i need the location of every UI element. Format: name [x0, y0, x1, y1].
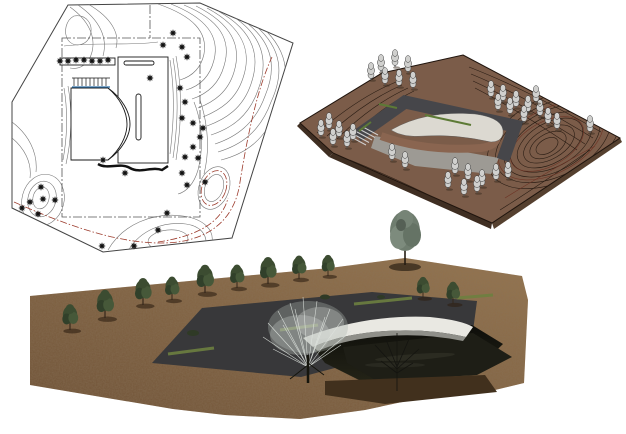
image-collage [0, 0, 626, 434]
rendering [25, 205, 565, 433]
rendering-figure [25, 205, 565, 433]
